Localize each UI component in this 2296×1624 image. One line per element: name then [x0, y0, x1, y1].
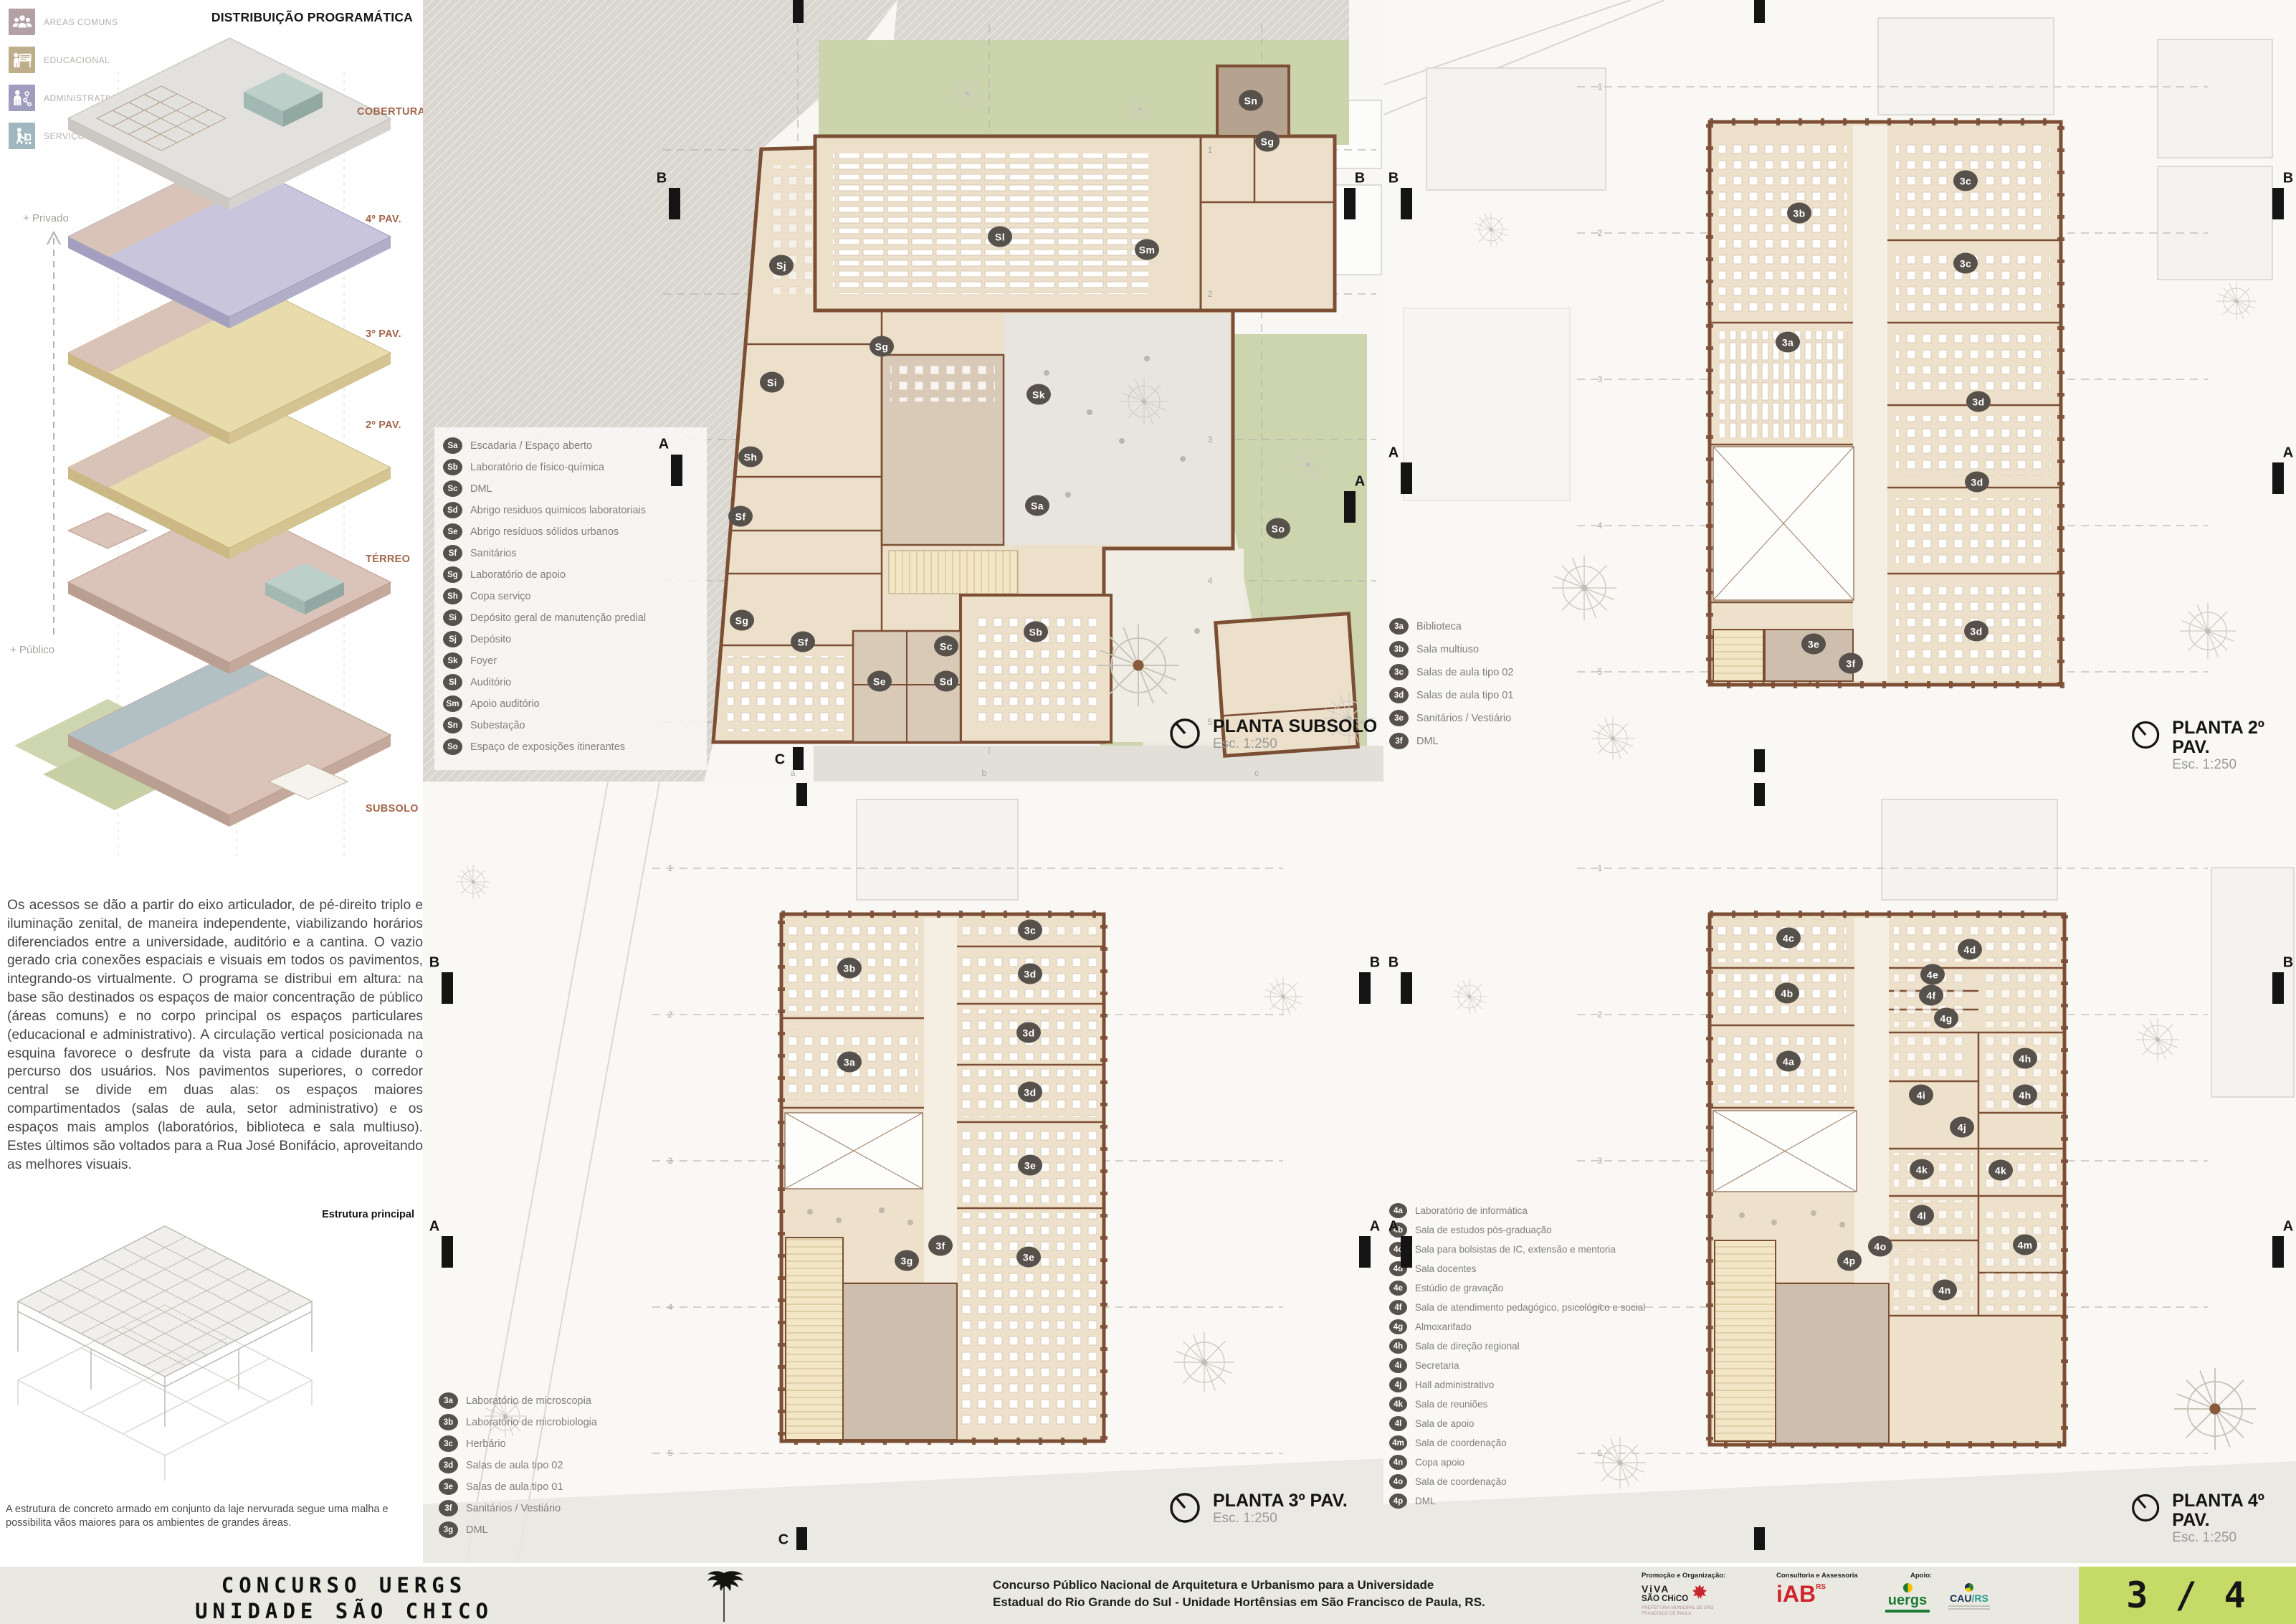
section-letter-a: A — [1388, 1219, 1399, 1235]
legend-item: 4eEstúdio de gravação — [1389, 1281, 1645, 1296]
uergs-emblem-icon — [1903, 1583, 1912, 1592]
legend-item: 4cSala para bolsistas de IC, extensão e … — [1389, 1242, 1645, 1257]
legend-item: 4aLaboratório de informática — [1389, 1203, 1645, 1218]
grid-row-label: 3 — [1208, 435, 1213, 445]
room-badge: 4a — [1776, 1051, 1801, 1072]
room-badge: Se — [867, 671, 892, 692]
room-badge: Sb — [1024, 622, 1048, 642]
room-badge: Sc — [934, 636, 958, 657]
gradient-label-public: + Público — [10, 644, 54, 656]
room-badge: Sf — [728, 506, 753, 527]
gradient-label-private: + Privado — [23, 212, 69, 224]
uergs-logo: uergs — [1885, 1583, 1930, 1613]
section-cut-bar — [2272, 188, 2284, 219]
section-letter-a: A — [2283, 1219, 2293, 1235]
room-badge: 3g — [895, 1250, 919, 1271]
floor-label-subsolo: SUBSOLO — [366, 803, 419, 815]
room-badge: 4e — [1920, 964, 1945, 985]
room-badge: 3d — [1964, 621, 1988, 642]
section-cut-bar — [1359, 1236, 1371, 1268]
legend-item: 4bSala de estudos pós-graduação — [1389, 1222, 1645, 1238]
legend-item: ShCopa serviço — [443, 588, 698, 604]
section-letter-b: B — [1370, 955, 1380, 972]
room-badge: 4c — [1776, 928, 1801, 949]
room-badge: 3c — [1953, 253, 1978, 274]
grid-row-label: 5 — [668, 1448, 673, 1458]
room-badge: 4p — [1837, 1250, 1862, 1271]
page-number-box: 3 / 4 — [2079, 1567, 2296, 1624]
section-letter-a: A — [429, 1219, 439, 1235]
legend-item: 3aLaboratório de microscopia — [439, 1392, 597, 1409]
section-letter-a: A — [1370, 1219, 1380, 1235]
room-badge: Sa — [1025, 495, 1049, 516]
room-badge: 4n — [1933, 1280, 1957, 1301]
room-badge: 3f — [1839, 653, 1863, 674]
subsolo-legend: SaEscadaria / Espaço aberto SbLaboratóri… — [434, 427, 707, 770]
room-badge: 4g — [1934, 1008, 1958, 1029]
pav2-legend: 3aBiblioteca 3bSala multiuso 3cSalas de … — [1389, 618, 1513, 756]
credit-consultant: Consultoria e Assessoria iAB RS — [1776, 1572, 1869, 1605]
section-cut-bar — [1401, 462, 1412, 494]
legend-item: ScDML — [443, 480, 698, 497]
room-badge: 3d — [1018, 1082, 1042, 1103]
section-cut-bar — [1754, 749, 1765, 772]
legend-item: SfSanitários — [443, 545, 698, 561]
grid-row-label: 1 — [668, 863, 673, 873]
room-badge: 3d — [1965, 472, 1989, 493]
section-cut-bar — [793, 0, 804, 23]
plan-panel-pav2: 3b 3c 3c 3a 3d 3d 3d 3e 3f 1 2 3 4 5 B B… — [1383, 0, 2296, 782]
maple-leaf-icon — [1691, 1583, 1708, 1600]
floor-label-terreo: TÉRREO — [366, 554, 410, 565]
floor-label-2pav: 2º PAV. — [366, 419, 401, 431]
plan-panel-subsolo: Sn Sg Sl Sm Sj Sg Si Sk Sh Sf Sa So Sg S… — [423, 0, 1383, 782]
section-cut-bar — [1344, 188, 1356, 219]
room-badge: Sg — [1255, 131, 1280, 152]
legend-item: 4dSala docentes — [1389, 1261, 1645, 1276]
grid-row-label: 3 — [668, 1156, 673, 1166]
section-letter-a: A — [2283, 445, 2293, 462]
legend-item: 3fDML — [1389, 733, 1513, 749]
footer-band: CONCURSO UERGS UNIDADE SÃO CHICO Concurs… — [0, 1567, 2296, 1624]
section-letter-c: C — [778, 1532, 789, 1549]
room-badge: 3e — [1018, 1155, 1042, 1176]
legend-item: 3bLaboratório de microbiologia — [439, 1414, 597, 1430]
section-cut-bar — [1401, 1236, 1412, 1268]
section-letter-b: B — [429, 955, 439, 972]
room-badge: Sm — [1135, 239, 1159, 260]
plan-panel-pav3: 3b 3c 3d 3a 3d 3d 3e 3f 3g 3e 1 2 3 4 5 … — [423, 782, 1383, 1563]
section-cut-bar — [442, 972, 453, 1004]
room-badge: 4h — [2013, 1048, 2037, 1069]
room-badge: Sd — [934, 671, 958, 692]
section-cut-bar — [793, 747, 804, 770]
legend-item: 4mSala de coordenação — [1389, 1435, 1645, 1450]
legend-item: SeAbrigo resíduos sólidos urbanos — [443, 523, 698, 540]
grid-row-label: 3 — [1598, 374, 1603, 384]
legend-item: 4oSala de coordenação — [1389, 1474, 1645, 1489]
grid-row-label: 1 — [1208, 145, 1213, 155]
section-cut-bar — [671, 455, 682, 486]
room-badge: Sg — [730, 610, 754, 631]
north-icon — [2130, 718, 2161, 751]
room-badge: 4k — [1910, 1159, 1934, 1180]
north-icon — [1168, 1491, 1201, 1524]
section-letter-b: B — [1388, 171, 1399, 187]
room-badge: Sh — [738, 447, 763, 467]
grid-row-label: 1 — [1598, 82, 1603, 92]
floor-label-cobertura: COBERTURA — [357, 106, 423, 118]
pav3-legend: 3aLaboratório de microscopia 3bLaboratór… — [439, 1392, 597, 1543]
plan-title-pav4: PLANTA 4º PAV. Esc. 1:250 — [2130, 1491, 2296, 1546]
section-letter-b: B — [657, 171, 667, 187]
room-badge: 4f — [1919, 985, 1943, 1006]
grid-row-label: 5 — [1598, 667, 1603, 677]
floor-label-4pav: 4º PAV. — [366, 214, 401, 225]
section-cut-bar — [669, 188, 680, 219]
north-icon — [1168, 717, 1201, 750]
legend-item: 3dSalas de aula tipo 02 — [439, 1457, 597, 1473]
program-diagram-title: DISTRIBUIÇÃO PROGRAMÁTICA — [163, 10, 413, 25]
plan-title-subsolo: PLANTA SUBSOLO Esc. 1:250 — [1168, 717, 1377, 752]
section-letter-b: B — [2283, 171, 2293, 187]
section-cut-bar — [1754, 1527, 1765, 1550]
legend-item: 3bSala multiuso — [1389, 641, 1513, 657]
room-badge: 4i — [1909, 1085, 1933, 1106]
legend-item: SnSubestação — [443, 717, 698, 733]
room-badge: 3b — [1787, 203, 1811, 224]
section-cut-bar — [1754, 0, 1765, 23]
room-badge: 4m — [2013, 1235, 2037, 1255]
floor-label-3pav: 3º PAV. — [366, 328, 401, 340]
araucaria-tree-icon — [699, 1569, 749, 1623]
room-badge: Sl — [988, 227, 1012, 247]
legend-item: SoEspaço de exposições itinerantes — [443, 739, 698, 755]
room-badge: Sj — [769, 255, 794, 276]
grid-row-label: 2 — [1598, 228, 1603, 238]
room-badge: 3d — [1016, 1022, 1041, 1043]
room-badge: 4o — [1868, 1236, 1892, 1257]
room-badge: 3d — [1966, 391, 1991, 412]
iab-logo-rs: RS — [1816, 1583, 1826, 1591]
structure-caption: A estrutura de concreto armado em conjun… — [6, 1503, 413, 1530]
concept-description: Os acessos se dão a partir do eixo artic… — [7, 896, 423, 1174]
legend-item: SlAuditório — [443, 674, 698, 690]
room-badge: 3a — [1776, 332, 1800, 353]
grid-row-label: 2 — [1208, 289, 1213, 299]
plan-panel-pav4: 4c 4b 4a 4d 4e 4f 4g 4h 4i 4h 4j 4k 4k 4… — [1383, 782, 2296, 1563]
room-badge: Sk — [1026, 384, 1051, 405]
section-letter-a: A — [1355, 474, 1365, 490]
legend-item: 3eSanitários / Vestiário — [1389, 710, 1513, 726]
caurs-emblem-icon — [1965, 1583, 1973, 1592]
room-badge: 4b — [1775, 983, 1799, 1004]
grid-row-label: 4 — [668, 1302, 673, 1312]
section-cut-bar — [1344, 491, 1356, 523]
room-badge: Sg — [870, 336, 894, 357]
credit-support: Apoio: uergs CAU/RS — [1885, 1572, 1990, 1613]
legend-item: 4kSala de reuniões — [1389, 1397, 1645, 1412]
legend-item: 3gDML — [439, 1521, 597, 1538]
section-cut-bar — [2272, 1236, 2284, 1268]
viva-logo-subtext: PREFEITURA MUNICIPAL DE SÃO FRANCISCO DE… — [1642, 1605, 1724, 1617]
legend-item: 4hSala de direção regional — [1389, 1339, 1645, 1354]
room-badge: 4l — [1910, 1205, 1934, 1226]
viva-logo-text: ViVA — [1642, 1583, 1688, 1595]
room-badge: Sn — [1239, 90, 1263, 111]
section-letter-b: B — [1388, 955, 1399, 972]
section-letter-a: A — [659, 437, 669, 453]
caurs-subtext-bar — [1948, 1605, 1990, 1607]
room-badge: 3e — [1801, 634, 1826, 655]
room-badge: 4j — [1950, 1117, 1974, 1138]
legend-item: SdAbrigo residuos quimicos laboratoriais — [443, 502, 698, 518]
room-badge: 3c — [1953, 171, 1978, 191]
section-cut-bar — [796, 1527, 807, 1550]
legend-item: 3cHerbário — [439, 1435, 597, 1452]
plan-title-pav3: PLANTA 3º PAV. Esc. 1:250 — [1168, 1491, 1348, 1526]
section-cut-bar — [2272, 462, 2284, 494]
program-distribution-panel: DISTRIBUIÇÃO PROGRAMÁTICA ÁREAS COMUNS E… — [0, 0, 423, 1567]
credit-organizer: Promoção e Organização: ViVA SÃO CHiCO P… — [1642, 1572, 1749, 1617]
legend-item: 3dSalas de aula tipo 01 — [1389, 687, 1513, 703]
section-cut-bar — [2272, 972, 2284, 1004]
legend-item: SgLaboratório de apoio — [443, 566, 698, 583]
room-badge: Si — [760, 372, 784, 393]
grid-col-label: b — [982, 768, 987, 778]
legend-item: SkFoyer — [443, 652, 698, 669]
section-cut-bar — [796, 783, 807, 806]
room-badge: 4d — [1958, 939, 1982, 960]
section-letter-b: B — [2283, 955, 2293, 972]
legend-item: SbLaboratório de físico-química — [443, 459, 698, 475]
grid-row-label: 2 — [668, 1010, 673, 1020]
room-badge: 3b — [837, 958, 862, 979]
room-badge: 3e — [1016, 1247, 1041, 1268]
iab-logo: iAB — [1776, 1583, 1816, 1605]
competition-title: CONCURSO UERGS UNIDADE SÃO CHICO — [129, 1572, 559, 1624]
structure-isometric-diagram — [11, 1219, 319, 1491]
legend-item: 4gAlmoxarifado — [1389, 1319, 1645, 1334]
room-badge: 3d — [1018, 964, 1042, 984]
category-label: ÁREAS COMUNS — [44, 17, 118, 27]
section-letter-b: B — [1355, 171, 1365, 187]
section-cut-bar — [1754, 783, 1765, 806]
grid-row-label: 4 — [1208, 576, 1213, 586]
room-badge: 3a — [837, 1052, 862, 1073]
section-cut-bar — [1401, 188, 1412, 219]
legend-item: 4fSala de atendimento pedagógico, psicol… — [1389, 1300, 1645, 1315]
room-badge: 3c — [1018, 920, 1042, 941]
north-icon — [2130, 1491, 2161, 1524]
legend-item: 4nCopa apoio — [1389, 1455, 1645, 1470]
room-badge: So — [1266, 518, 1290, 539]
legend-item: 3fSanitários / Vestiário — [439, 1500, 597, 1516]
exploded-axonometric-diagram — [0, 29, 423, 889]
grid-row-label: 2 — [1598, 1010, 1603, 1020]
uergs-logo-bar — [1885, 1610, 1930, 1613]
section-letter-c: C — [775, 752, 785, 769]
legend-item: 3aBiblioteca — [1389, 618, 1513, 635]
legend-item: SmApoio auditório — [443, 695, 698, 712]
section-cut-bar — [1401, 972, 1412, 1004]
section-cut-bar — [442, 1236, 453, 1268]
room-badge: 4h — [2013, 1085, 2037, 1106]
caurs-subtext-bar — [1948, 1608, 1990, 1610]
pav4-legend: 4aLaboratório de informática 4bSala de e… — [1389, 1203, 1645, 1513]
legend-item: 4jHall administrativo — [1389, 1377, 1645, 1392]
legend-item: SiDepósito geral de manutenção predial — [443, 609, 698, 626]
legend-item: 3eSalas de aula tipo 01 — [439, 1478, 597, 1495]
grid-row-label: 1 — [1598, 863, 1603, 873]
grid-row-label: 3 — [1598, 1156, 1603, 1166]
legend-item: 3cSalas de aula tipo 02 — [1389, 664, 1513, 680]
room-badge: Sf — [791, 632, 815, 652]
section-letter-a: A — [1388, 445, 1399, 462]
legend-item: 4pDML — [1389, 1494, 1645, 1509]
caurs-logo: CAU/RS — [1948, 1583, 1990, 1610]
competition-board-sheet: DISTRIBUIÇÃO PROGRAMÁTICA ÁREAS COMUNS E… — [0, 0, 2296, 1624]
competition-description: Concurso Público Nacional de Arquitetura… — [993, 1577, 1485, 1610]
plan-title-pav2: PLANTA 2º PAV. Esc. 1:250 — [2130, 718, 2296, 773]
legend-item: 4lSala de apoio — [1389, 1416, 1645, 1431]
room-badge: 4k — [1988, 1160, 2013, 1181]
room-badge: 3f — [928, 1235, 953, 1256]
section-cut-bar — [1359, 972, 1371, 1004]
page-number: 3 / 4 — [2126, 1575, 2249, 1616]
legend-item: SjDepósito — [443, 631, 698, 647]
legend-item: 4iSecretaria — [1389, 1358, 1645, 1373]
grid-col-label: c — [1254, 768, 1259, 778]
grid-row-label: 4 — [1598, 521, 1603, 531]
